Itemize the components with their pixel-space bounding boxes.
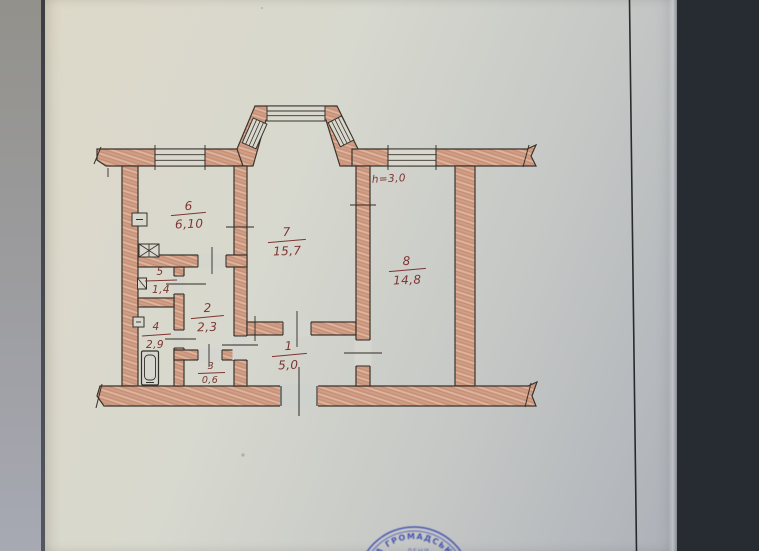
room-3-number: 3 (208, 361, 214, 372)
room-7-area: 15,7 (273, 244, 302, 259)
room-8-number: 8 (402, 254, 411, 268)
paper-smudge (241, 453, 244, 456)
door-entrance (280, 367, 318, 416)
wall-right (455, 166, 475, 386)
photo-of-floor-plan-page: { "plan": { "height_note": "h=3,0", "roo… (0, 0, 759, 551)
room-6-number: 6 (184, 199, 193, 213)
room-4-label: 4 2,9 (142, 321, 171, 351)
room-5-number: 5 (156, 266, 163, 278)
window-room6 (155, 145, 205, 170)
room-2-label: 2 2,3 (190, 300, 224, 334)
floor-plan-drawing: 6 6,10 7 15,7 8 14,8 5 1,4 2 2,3 4 2,9 (0, 0, 759, 551)
room-1-area: 5,0 (278, 358, 299, 373)
room-6-area: 6,10 (175, 217, 204, 232)
stamp-inner-text: ЛЕНИ (407, 547, 430, 551)
paper-speck (261, 7, 263, 9)
vent-box-icon (139, 244, 159, 257)
room-8-area: 14,8 (393, 273, 422, 288)
wall-top-right (352, 145, 536, 166)
page-frame-line (630, 0, 637, 551)
windows (155, 106, 436, 170)
bathtub-icon (142, 351, 159, 385)
room-4-area: 2,9 (146, 339, 164, 351)
wall-left (122, 166, 138, 386)
room-4-number: 4 (152, 321, 159, 333)
door-1-8 (344, 340, 382, 366)
room-7-label: 7 15,7 (267, 224, 306, 258)
door-4 (165, 330, 196, 348)
door-6 (198, 247, 226, 274)
window-bay-right (328, 116, 354, 147)
room-6-label: 6 6,10 (170, 198, 206, 231)
room-2-area: 2,3 (197, 320, 218, 335)
room-1-label: 1 5,0 (271, 338, 307, 372)
room-3-area: 0,6 (202, 375, 218, 386)
room-2-number: 2 (203, 301, 212, 315)
room-3-label: 3 0,6 (198, 361, 225, 386)
wall-5-4 (138, 298, 174, 307)
window-bay-top (267, 106, 325, 121)
meter-box-icon (133, 317, 144, 327)
room-5-area: 1,4 (152, 284, 170, 296)
round-stamp: КА ГРОМАДСЬКА ЛЕНИ (357, 527, 471, 551)
door-5 (166, 276, 206, 294)
ceiling-height-note: h=3,0 (371, 172, 406, 186)
wall-switch-icon (132, 213, 147, 226)
room-8-label: 8 14,8 (388, 253, 426, 287)
window-bay-left (242, 118, 267, 149)
room-5-label: 5 1,4 (145, 266, 177, 296)
niche-box-icon (138, 278, 147, 289)
window-room8 (388, 145, 436, 170)
room-7-number: 7 (282, 225, 291, 239)
room-1-number: 1 (284, 339, 293, 353)
